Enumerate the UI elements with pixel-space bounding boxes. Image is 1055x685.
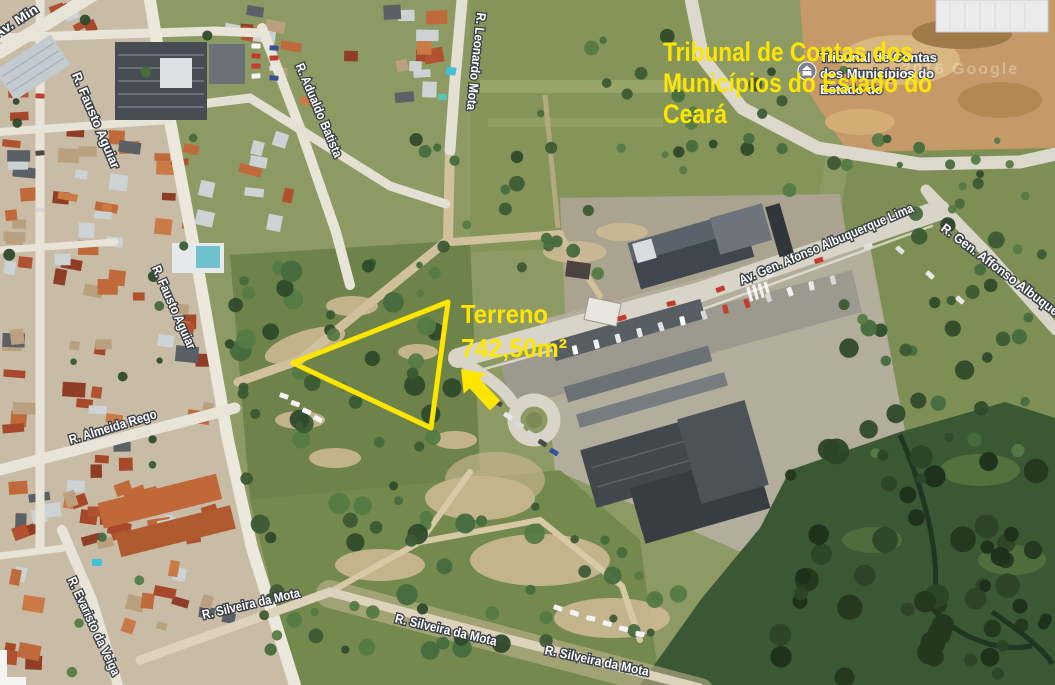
satellite-map: Av. MinR. Fausto AguiarR. Adualdo Batist… (0, 0, 1055, 685)
annotation-title-line3: Ceará (663, 99, 728, 129)
terreno-label: Terreno (461, 299, 548, 329)
annotated-satellite-image: Av. MinR. Fausto AguiarR. Adualdo Batist… (0, 0, 1055, 685)
construction-site-building (936, 0, 1048, 32)
annotation-title-line2: Municípios do Estado do (663, 68, 932, 98)
terreno-area-label: 742,50m² (461, 333, 567, 363)
annotation-title-line1: Tribunal de Contas dos (663, 37, 913, 67)
